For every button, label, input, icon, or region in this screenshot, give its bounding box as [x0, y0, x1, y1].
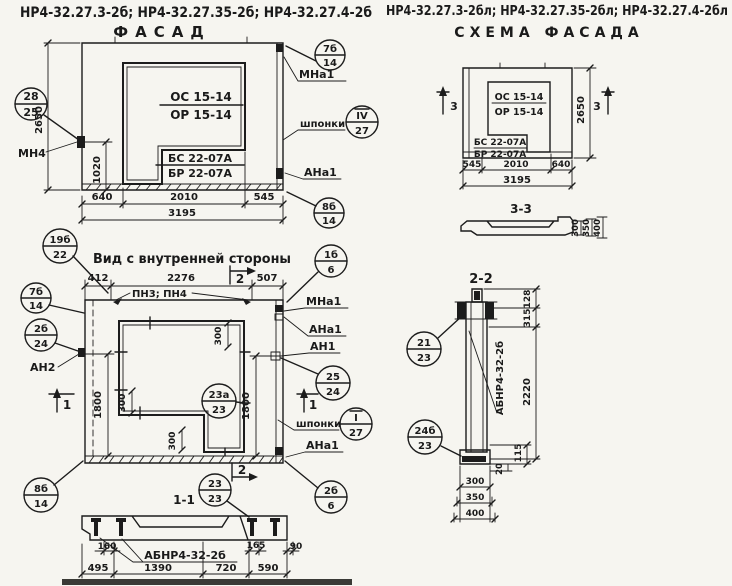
scheme-marker3-left: 3 [450, 100, 458, 113]
callout-bottom: 24 [326, 387, 340, 398]
section11-dim-1390: 1390 [144, 563, 172, 574]
scheme-dim-2010: 2010 [503, 160, 528, 170]
callout-bottom: 27 [355, 126, 369, 137]
inner-an2-leader [58, 354, 79, 367]
inner-marker1-left: 1 [63, 398, 71, 412]
callout-bottom: 25 [23, 106, 38, 119]
callout-top: 2б [324, 485, 338, 497]
facade-drawing: ОС 15-14 ОР 15-14 БС 22-07А БР 22-07А 64… [15, 37, 378, 228]
callout-top: IV [356, 111, 368, 122]
facade-dim-1020: 1020 [92, 156, 103, 184]
callout-bottom: 23 [208, 494, 222, 505]
section22-dim-350: 350 [466, 493, 485, 503]
scheme-title: СХЕМА ФАСАДА [454, 25, 643, 41]
section11-dim-720: 720 [216, 563, 237, 574]
inner-mna1-leader [284, 308, 348, 311]
inner-dim-1800-right: 1800 [241, 392, 252, 420]
callout-bottom: 23 [417, 353, 431, 364]
inner-label-an1: АН1 [310, 340, 335, 353]
facade-label-mn4: МН4 [18, 147, 46, 160]
inner-label-mna1: МНа1 [306, 295, 341, 308]
facade-door-block-bottom: БР 22-07А [168, 167, 232, 180]
facade-window-opening [123, 63, 245, 184]
inner-dim-2276: 2276 [167, 273, 195, 284]
section33-dim-350: 350 [582, 219, 592, 237]
inner-dim-ticks [82, 283, 286, 459]
inner-dim-1800-left: 1800 [93, 391, 104, 419]
inner-label-shponki: шпонки [296, 419, 341, 430]
inner-callout-bottom: 23 23 [199, 474, 249, 517]
callout-top: 23 [208, 479, 222, 490]
inner-dim-300-c: 300 [168, 432, 178, 451]
scheme-marker3-right-arrow [604, 86, 612, 96]
callout-bottom: 6 [328, 501, 335, 512]
scheme-dim-545: 545 [463, 160, 482, 170]
section22-drawing: 2-2 АБНР4-32-2б 128 315 2220 115 20 300 … [407, 272, 540, 522]
section22-dim-315: 315 [523, 309, 533, 328]
inner-callout-bottom-right: 2б 6 [285, 461, 347, 513]
callout-top: 19б [50, 234, 71, 246]
callout-bottom: 22 [53, 250, 67, 261]
section22-dim-20: 20 [495, 463, 505, 475]
inner-dim-300-b: 300 [118, 394, 128, 413]
inner-an1-leader [281, 353, 340, 356]
callout-top: 8б [34, 483, 48, 495]
section22-top-anchor [457, 291, 494, 319]
inner-callout-bottom-left: 8б 14 [24, 461, 83, 512]
scheme-drawing: ОС 15-14 ОР 15-14 БС 22-07А БР 22-07А 26… [437, 63, 614, 238]
facade-dim-3195: 3195 [168, 208, 196, 219]
scheme-dim-2650: 2650 [576, 96, 587, 124]
inner-label-ana1-bottom: АНа1 [306, 439, 339, 452]
scheme-dim-lines [463, 68, 596, 189]
facade-mn4-leader [46, 142, 77, 152]
inner-label-an2: АН2 [30, 361, 55, 374]
section22-bottom-anchor [462, 456, 486, 462]
facade-dim-640: 640 [92, 192, 113, 203]
section11-dim-160: 160 [98, 542, 117, 552]
facade-label-ana1: АНа1 [304, 166, 337, 179]
section22-dim-400: 400 [466, 509, 485, 519]
callout-top: 8б [322, 201, 336, 213]
scheme-dim-3195: 3195 [503, 175, 531, 186]
scheme-marker3-right: 3 [593, 100, 601, 113]
callout-bottom: 23 [418, 441, 432, 452]
section11-drawing: 1-1 АБНР4-32-2б 160 165 90 495 1390 720 … [79, 493, 302, 578]
facade-label-shponki: шпонки [300, 119, 345, 130]
facade-bottom-hatch [86, 184, 281, 190]
callout-top: 24б [415, 425, 436, 437]
section22-body-inner-lines [471, 302, 483, 452]
drawing-sheet: НР4-32.27.3-2б; НР4-32.27.35-2б; НР4-32.… [0, 0, 732, 586]
inner-marker2-bottom: 2 [238, 463, 246, 477]
callout-top: 23а [209, 390, 230, 401]
scheme-door-block-top: БС 22-07А [474, 138, 526, 148]
section11-dim-590: 590 [258, 563, 279, 574]
scheme-window-block-top: ОС 15-14 [495, 92, 544, 103]
section11-mark: АБНР4-32-2б [144, 549, 226, 562]
callout-bottom: 6 [328, 265, 335, 276]
section11-dim-165: 165 [247, 541, 266, 551]
facade-callout-keys: IV 27 [346, 106, 378, 138]
section33-dim-400: 400 [593, 219, 603, 237]
section22-callout-top: 21 23 [407, 316, 462, 366]
callout-top: 21 [417, 338, 431, 349]
section22-dim-300: 300 [466, 477, 485, 487]
facade-window-block-top: ОС 15-14 [170, 90, 232, 104]
facade-shponki-leader [283, 130, 345, 140]
inner-anchor-plates-outline [271, 314, 283, 360]
inner-marker2-bottom-arrow [249, 473, 258, 481]
callout-bottom: 14 [322, 216, 336, 227]
scheme-dim-640: 640 [552, 160, 571, 170]
section22-title: 2-2 [469, 272, 493, 287]
section11-dim-495: 495 [88, 563, 109, 574]
callout-top: 2б [34, 323, 48, 335]
facade-callout-left: 28 25 [15, 88, 79, 140]
inner-callout-left-upper: 7б 14 [21, 283, 84, 313]
callout-top: I [354, 413, 358, 424]
left-codes-title: НР4-32.27.3-2б; НР4-32.27.35-2б; НР4-32.… [20, 5, 372, 21]
inner-dim-507: 507 [257, 273, 278, 284]
facade-door-block-top: БС 22-07А [168, 152, 232, 165]
section22-callout-bottom: 24б 23 [408, 420, 461, 456]
inner-label-pn: ПН3; ПН4 [132, 289, 187, 300]
callout-divider-leader [24, 461, 83, 495]
callout-bottom: 14 [29, 301, 43, 312]
inner-panel-outline [85, 300, 283, 463]
section22-dim-115: 115 [514, 444, 524, 463]
callout-divider-leader [202, 401, 245, 403]
callout-bottom: 27 [349, 428, 363, 439]
inner-callout-top-right: 1б 6 [287, 245, 347, 302]
facade-label-mna1: МНа1 [299, 68, 334, 81]
inner-view-title: Вид с внутренней стороны [93, 252, 291, 267]
section11-dim-90: 90 [290, 542, 303, 552]
section22-dim-128: 128 [523, 290, 533, 309]
section22-body [466, 302, 487, 452]
callout-divider-leader [407, 316, 462, 349]
callout-top: 1б [324, 249, 338, 261]
facade-dim-2010: 2010 [170, 192, 198, 203]
inner-dim-lines [84, 280, 283, 456]
inner-anchor-plates-filled [78, 305, 283, 455]
inner-marker2-top-arrow [247, 267, 256, 275]
callout-top: 7б [323, 43, 337, 55]
callout-bottom: 24 [34, 339, 48, 350]
section22-mark: АБНР4-32-2б [494, 341, 506, 415]
callout-top: 7б [29, 286, 43, 298]
facade-callout-bottom-right: 8б 14 [287, 192, 344, 228]
section33-title: 3-3 [510, 202, 532, 216]
inner-marker1-right-arrow [300, 388, 308, 398]
facade-dim-545: 545 [254, 192, 275, 203]
panel-technical-drawing: НР4-32.27.3-2б; НР4-32.27.35-2б; НР4-32.… [0, 0, 732, 586]
inner-bottom-hatch [89, 456, 283, 463]
callout-bottom: 14 [34, 499, 48, 510]
facade-callout-top-right: 7б 14 [286, 40, 345, 70]
inner-callout-keys: I 27 [340, 408, 372, 440]
inner-marker1-right: 1 [309, 398, 317, 412]
inner-label-ana1-top: АНа1 [309, 323, 342, 336]
scan-edge-artifact [62, 579, 352, 585]
inner-dim-300-a: 300 [214, 327, 224, 346]
inner-window-embed-ticks [115, 317, 250, 456]
scheme-window-block-bottom: ОР 15-14 [495, 107, 544, 118]
callout-divider-leader [408, 437, 461, 456]
inner-panel-edges [85, 300, 283, 463]
inner-window-opening [119, 321, 244, 452]
titles: НР4-32.27.3-2б; НР4-32.27.35-2б; НР4-32.… [20, 4, 728, 41]
callout-bottom: 23 [212, 405, 226, 416]
scheme-marker3-left-arrow [439, 86, 447, 96]
right-codes-title: НР4-32.27.3-2бл; НР4-32.27.35-2бл; НР4-3… [386, 4, 728, 19]
section11-title: 1-1 [173, 493, 195, 507]
inner-marker2-top: 2 [236, 272, 244, 286]
section33-profile [461, 217, 573, 235]
inner-callout-left-mid: 2б 24 [25, 319, 78, 351]
inner-view-drawing: Вид с внутренней стороны 412 2276 507 18… [21, 229, 372, 517]
callout-top: 25 [326, 372, 340, 383]
inner-ana1-bottom-leader [286, 452, 343, 457]
section33-dim-300: 300 [571, 219, 581, 237]
inner-marker1-left-arrow [53, 388, 61, 398]
section22-dim-2220: 2220 [522, 378, 533, 406]
callout-top: 28 [23, 90, 38, 103]
facade-title: ФАСАД [113, 23, 210, 41]
facade-dim-lines [44, 43, 283, 224]
facade-window-block-bottom: ОР 15-14 [170, 108, 232, 122]
